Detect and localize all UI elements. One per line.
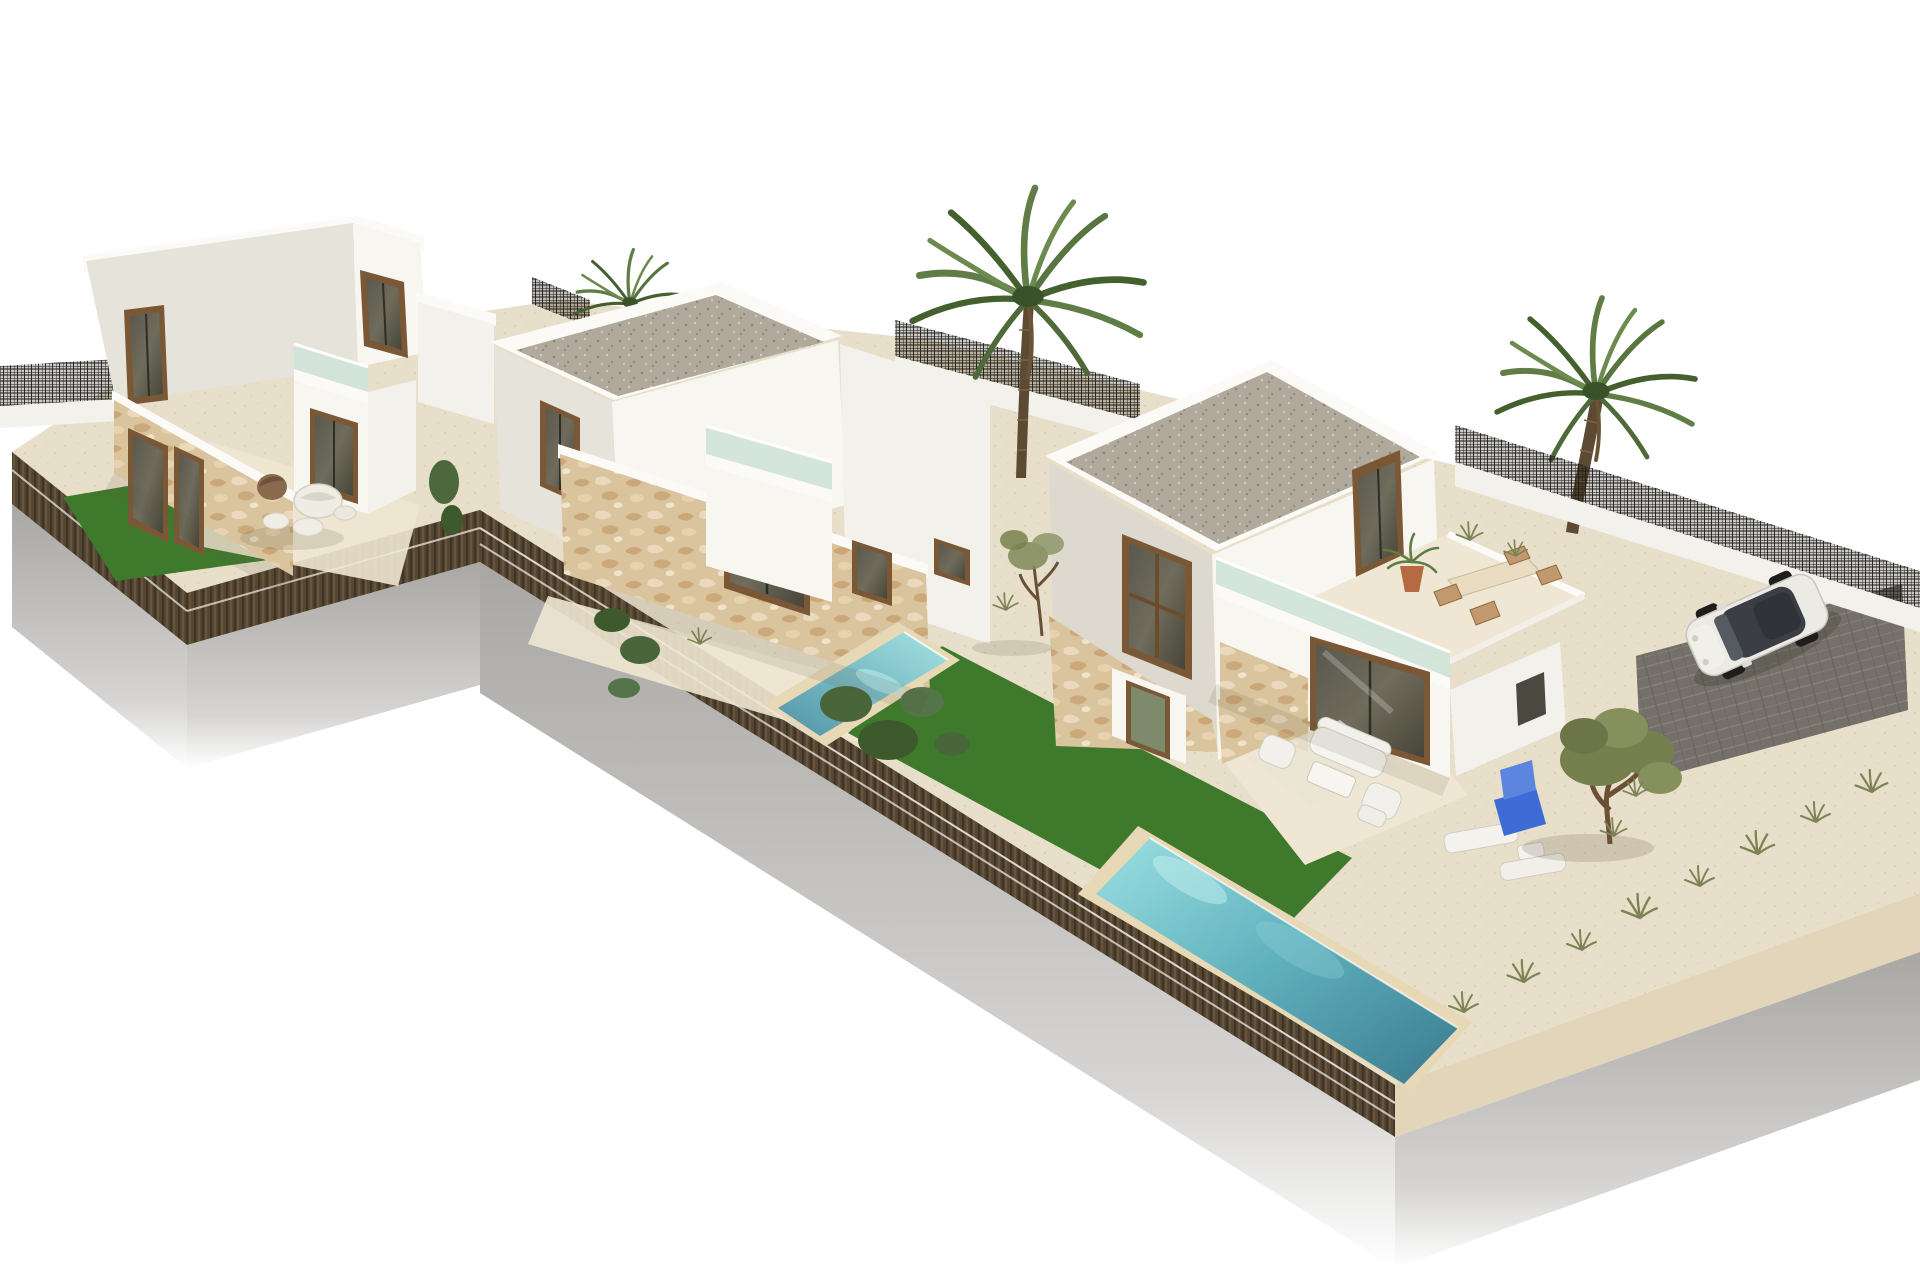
villa-1-window-upper-right xyxy=(360,270,408,358)
villa-1-window-tall xyxy=(124,305,168,405)
architectural-render xyxy=(0,0,1920,1280)
render-canvas xyxy=(0,0,1920,1280)
villa-3 xyxy=(1045,360,1584,778)
villa-2-rear-block xyxy=(416,292,496,424)
